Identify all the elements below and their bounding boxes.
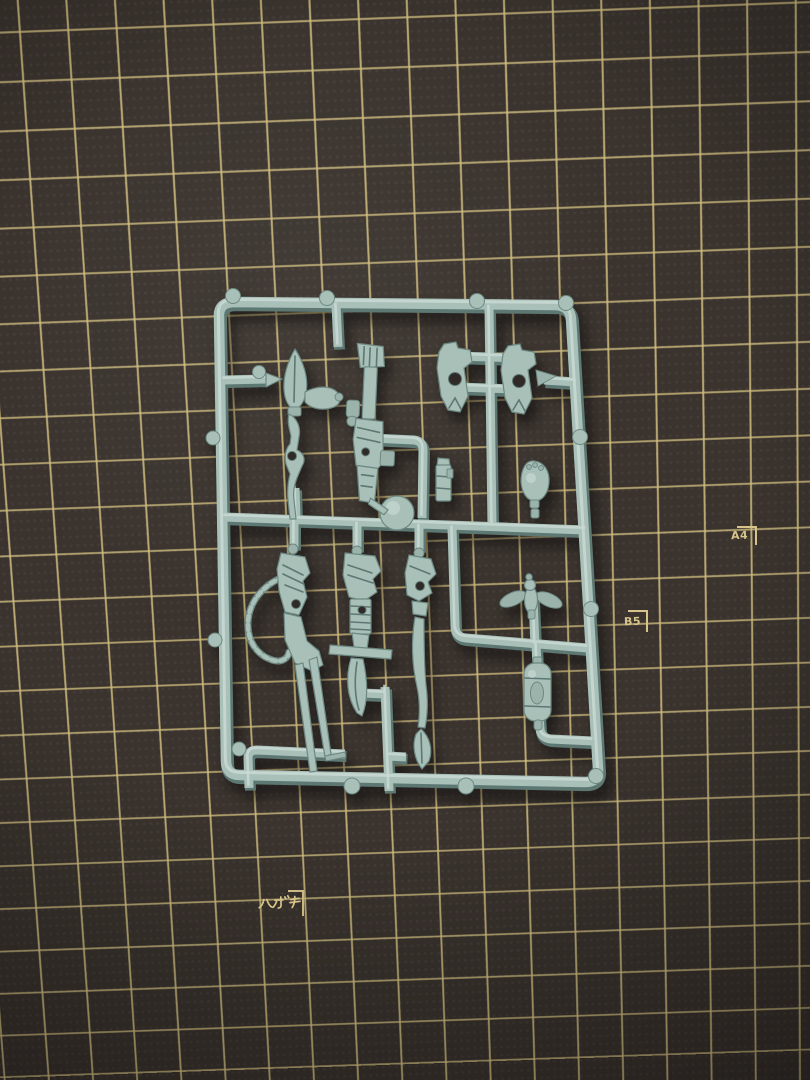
part-ammo-box: [436, 458, 453, 501]
part-chain-sword: [248, 544, 346, 772]
part-long-rifle: [342, 343, 399, 515]
cutting-mat-photo: A4 B5 ハガキ: [0, 0, 810, 1080]
part-hip-bracket-left: [437, 342, 472, 412]
part-grenade-bulb: [521, 461, 549, 518]
sprue-tab: [266, 373, 282, 387]
part-hip-bracket-right: [501, 344, 556, 414]
part-winged-charm: [498, 574, 565, 619]
part-staff-spear: [405, 548, 436, 769]
part-canister: [524, 657, 551, 730]
model-kit-sprue: [0, 0, 810, 1080]
part-spear-with-arm: [284, 349, 343, 519]
